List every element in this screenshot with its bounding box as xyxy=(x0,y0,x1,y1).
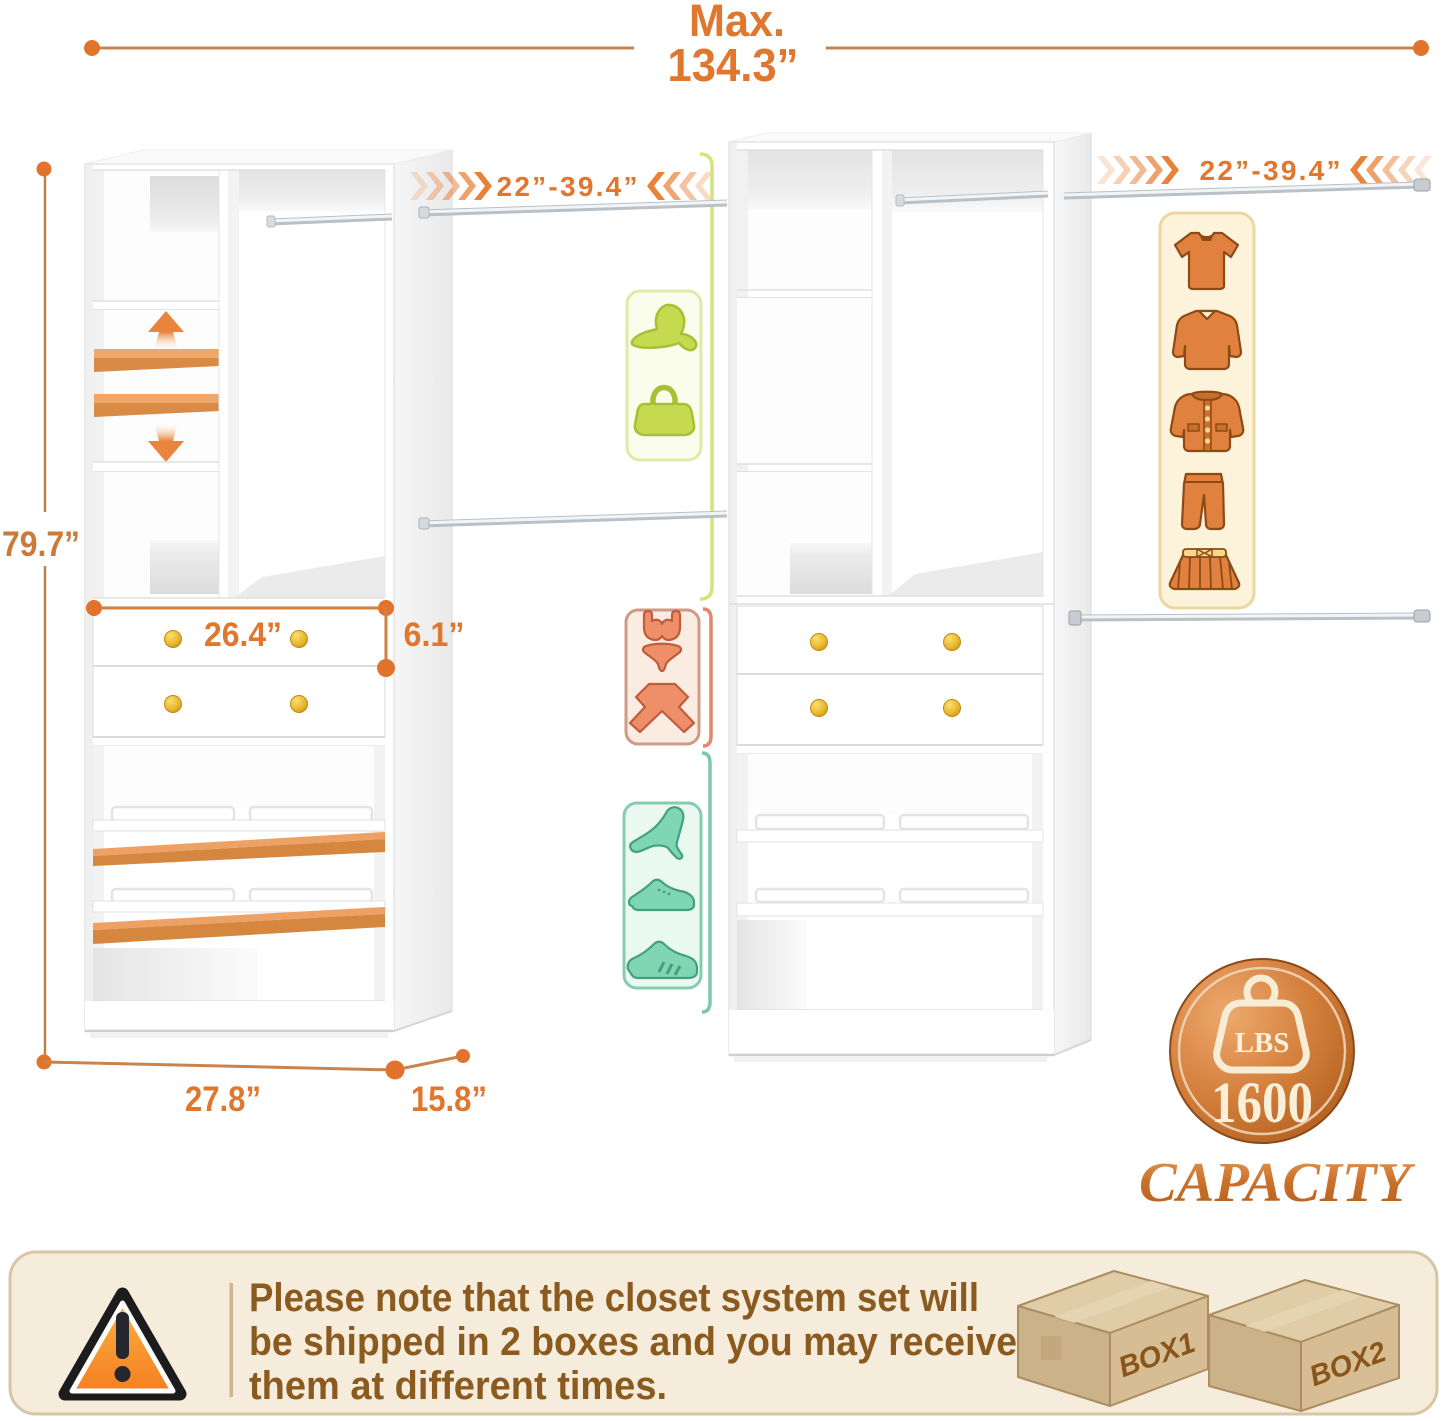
svg-text:them at different times.: them at different times. xyxy=(249,1364,667,1408)
svg-text:be shipped in 2 boxes and you: be shipped in 2 boxes and you may receiv… xyxy=(249,1320,1017,1364)
svg-text:LBS: LBS xyxy=(1235,1027,1290,1059)
svg-text:1600: 1600 xyxy=(1211,1070,1313,1135)
svg-text:6.1”: 6.1” xyxy=(404,616,465,654)
svg-text:79.7”: 79.7” xyxy=(2,525,80,564)
svg-text:22”-39.4”: 22”-39.4” xyxy=(497,171,638,202)
svg-text:134.3”: 134.3” xyxy=(668,39,799,91)
svg-text:26.4”: 26.4” xyxy=(204,616,282,654)
svg-text:CAPACITY: CAPACITY xyxy=(1139,1152,1416,1214)
svg-text:Please note that the closet sy: Please note that the closet system set w… xyxy=(249,1276,979,1320)
svg-text:15.8”: 15.8” xyxy=(411,1080,487,1119)
svg-text:22”-39.4”: 22”-39.4” xyxy=(1200,155,1341,186)
svg-text:27.8”: 27.8” xyxy=(185,1080,261,1119)
